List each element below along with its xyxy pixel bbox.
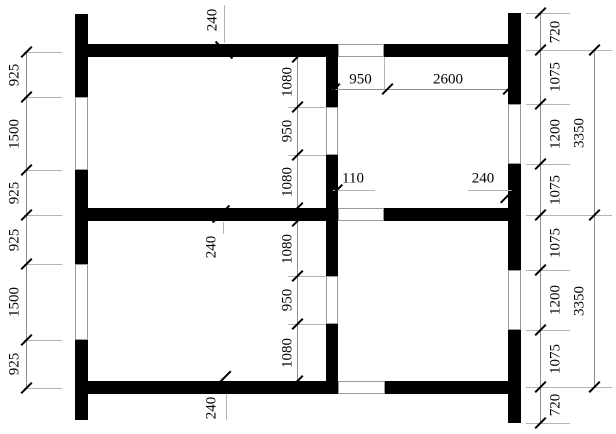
callout-leader-line <box>333 190 375 191</box>
wall-segment <box>75 14 88 97</box>
dimension-label: 950 <box>281 120 296 143</box>
dimension-label: 2600 <box>433 73 463 88</box>
wall-opening <box>338 381 385 394</box>
dimension-label: 925 <box>8 353 23 376</box>
callout-label: 240 <box>205 397 220 420</box>
dimension-connector <box>24 215 62 216</box>
wall-segment <box>326 50 338 107</box>
wall-segment <box>75 170 88 264</box>
dimension-label: 950 <box>349 73 372 88</box>
dimension-label: 3350 <box>573 118 588 148</box>
dimension-line <box>540 13 541 423</box>
wall-opening <box>338 44 384 57</box>
dimension-label: 925 <box>8 63 23 86</box>
dimension-label: 1080 <box>281 338 296 368</box>
dimension-connector <box>526 104 570 105</box>
dimension-label: 1500 <box>8 287 23 317</box>
dimension-label: 1080 <box>281 167 296 197</box>
dimension-label: 950 <box>281 289 296 312</box>
dimension-label: 1075 <box>549 175 564 205</box>
dimension-connector <box>526 330 570 331</box>
dimension-label: 1075 <box>549 62 564 92</box>
wall-opening <box>75 264 88 340</box>
callout-label: 240 <box>472 172 495 187</box>
dimension-line <box>594 50 595 387</box>
callout-leader-line <box>226 394 227 420</box>
dimension-connector <box>526 13 570 14</box>
dimension-label: 925 <box>8 228 23 251</box>
dimension-line <box>297 57 298 208</box>
dimension-connector <box>24 97 62 98</box>
dimension-label: 720 <box>549 394 564 417</box>
wall-segment <box>326 324 338 386</box>
wall-opening <box>508 270 521 330</box>
callout-leader-line <box>224 5 225 43</box>
dimension-connector <box>526 164 570 165</box>
wall-segment <box>385 381 512 394</box>
wall-opening <box>508 104 521 164</box>
wall-segment <box>88 381 338 394</box>
dimension-line <box>332 89 508 90</box>
callout-leader-line <box>223 222 224 234</box>
wall-segment <box>326 155 338 276</box>
callout-leader-line <box>468 190 513 191</box>
dimension-label: 1080 <box>281 67 296 97</box>
dimension-connector <box>24 388 62 389</box>
dimension-label: 1080 <box>281 234 296 264</box>
dimension-connector <box>24 264 62 265</box>
callout-label: 110 <box>342 172 364 187</box>
dimension-label: 925 <box>8 181 23 204</box>
dimension-label: 1500 <box>8 119 23 149</box>
dimension-label: 1075 <box>549 228 564 258</box>
dimension-connector <box>526 423 570 424</box>
dimension-label: 1200 <box>549 285 564 315</box>
dimension-label: 1075 <box>549 344 564 374</box>
wall-opening <box>326 107 338 155</box>
architectural-floor-plan: 9251500925925150092572010751200107510751… <box>0 0 616 434</box>
wall-opening <box>326 276 338 324</box>
wall-segment <box>384 44 512 57</box>
extension-line <box>384 57 385 89</box>
dimension-label: 3350 <box>573 286 588 316</box>
wall-segment <box>384 208 512 221</box>
wall-opening <box>75 97 88 170</box>
wall-segment <box>508 330 521 423</box>
wall-segment <box>508 13 521 104</box>
wall-segment <box>75 340 88 420</box>
dimension-label: 720 <box>549 20 564 43</box>
dimension-label: 1200 <box>549 119 564 149</box>
dimension-connector <box>24 340 62 341</box>
callout-label: 240 <box>205 236 220 259</box>
dimension-connector <box>24 52 62 53</box>
callout-label: 240 <box>206 9 221 32</box>
dimension-connector <box>24 170 62 171</box>
dimension-connector <box>526 270 570 271</box>
wall-opening <box>338 208 384 221</box>
dimension-line <box>297 221 298 381</box>
